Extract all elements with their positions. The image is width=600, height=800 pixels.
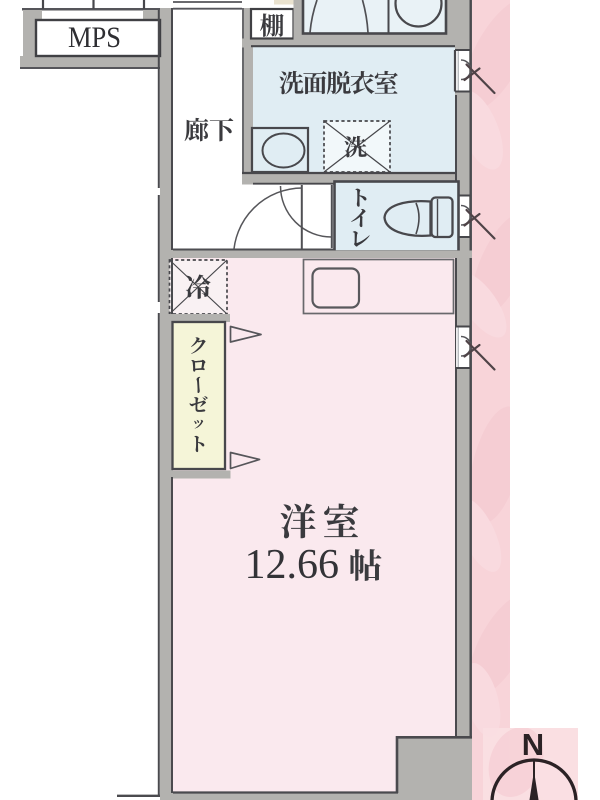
svg-text:MPS: MPS xyxy=(68,21,121,54)
svg-text:12.66: 12.66 xyxy=(245,542,340,588)
svg-text:N: N xyxy=(522,727,544,762)
